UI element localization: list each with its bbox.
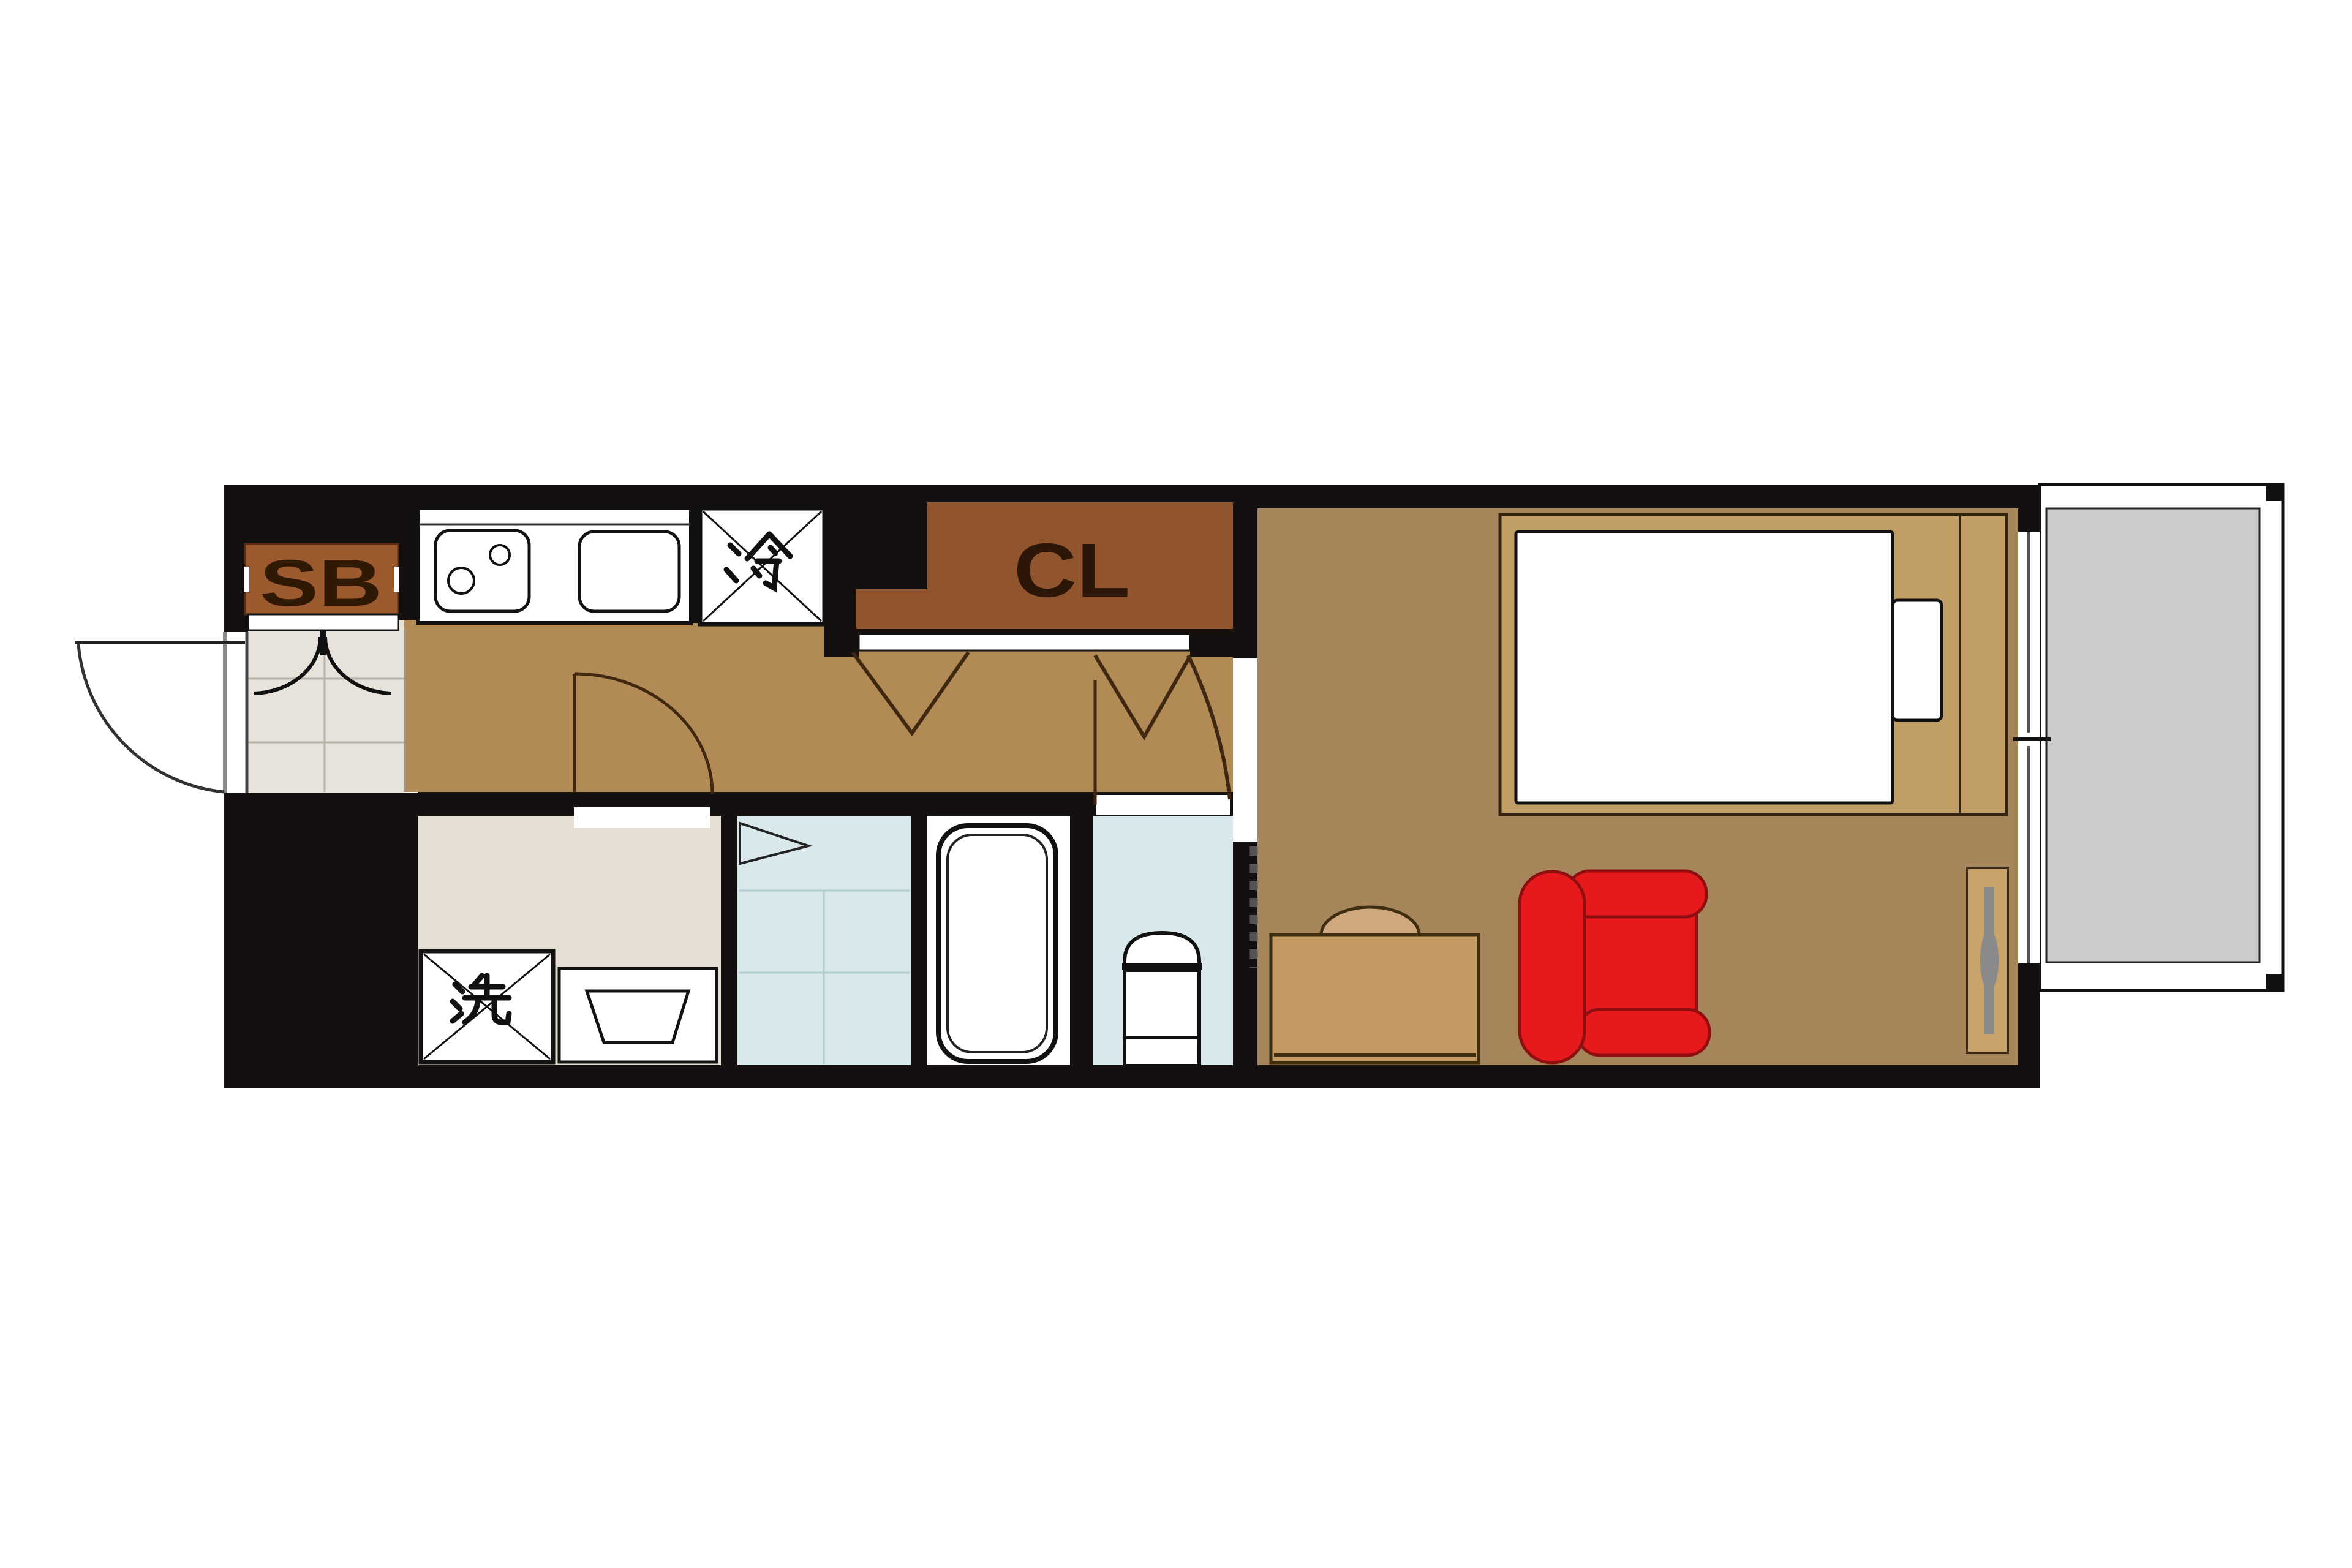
svg-text:CL: CL bbox=[1014, 528, 1130, 613]
svg-text:SB: SB bbox=[260, 546, 382, 620]
